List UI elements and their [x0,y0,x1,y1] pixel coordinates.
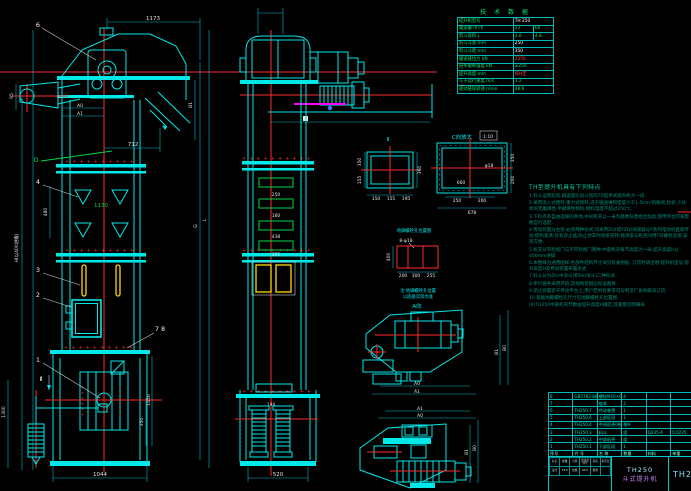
table-cell: 组 [622,428,646,435]
dim-m355: 355 [272,252,281,258]
table-cell [671,421,691,428]
revision-grid: 标记处数分区更改文件号签名年月日设计03.6校核03.6批准 [549,457,611,476]
table-cell: 3.0 [513,33,533,41]
dim-va-a1: A1 [414,389,420,395]
table-cell: 48.6 [513,86,553,94]
dim-v2-b1: 150 [372,196,381,202]
table-cell [671,414,691,421]
table-cell: 上部区段 [597,414,621,421]
dim-v2-left1: 350 [357,158,363,167]
table-cell: 23 [513,25,533,33]
bolt-marks: ++++++++++ [242,156,314,162]
dim-vb-a0: A0 [417,413,423,419]
table-cell: 1 [549,443,573,450]
table-cell [646,393,670,400]
table-cell: 2 [622,400,646,407]
table-row: 2TH250.2中部机壳组备件 [549,436,691,443]
dim-head-width: 1173 [146,16,160,22]
feature-notes: TH型提升机具有下列特点 1.料斗运距较宽,输送量比同斗宽的TD型带式提升机大一… [529,182,690,310]
table-cell: 4.8 [533,33,553,41]
dim-boot-h1: 1450 [146,394,152,406]
table-cell: 斗子运行速度 m/s [458,78,514,86]
table-cell [646,407,670,414]
table-cell [671,407,691,414]
title-block-product: TH250 斗式提升机 [612,457,669,491]
table-cell [671,443,691,450]
bolt-marks: ++++++ [80,384,85,416]
table-row: 6TH250.7传动装置1 [549,407,691,414]
table-cell: 6 [549,407,573,414]
table-cell [646,400,670,407]
anchor-note-2: 以底座实际为准 [403,293,434,300]
tech-table-title: 技 术 数 据 [457,7,554,16]
product-model: TH250 [627,466,653,474]
table-cell: TH250.1 [573,443,597,450]
table-cell: 年月日 [600,458,610,467]
table-row: 1TH250.1下部区段1备件 [549,443,691,450]
table-cell: TH250.2 [573,436,597,443]
dim-v2-b3: 195 [402,196,411,202]
table-cell: 料斗斗距 mm [458,48,514,56]
table-cell: 中部机壳 [597,436,621,443]
table-cell: 料斗 [597,428,621,435]
front-view: ++++++++++ ++++++++++ ++++++++++ 1130 ++… [12,28,190,468]
table-cell: 03.6 [580,467,590,476]
dim-v2-left2: 155 [357,176,363,185]
table-cell: 驱动链轮转速 r/min [458,86,514,94]
table-cell: 3 [549,428,573,435]
table-row: 7链条2L=按H [549,400,691,407]
dim-anchor-b3: 255 [427,273,436,279]
dim-a0: A0 [77,103,83,109]
table-row: 料斗斗距 mm350 [458,48,554,56]
table-row: 提升高度 mm按H定 [458,71,554,79]
table-cell: TH 250 [513,18,553,26]
callout-3: 3 [36,266,40,274]
tech-table-grid: 提升机型号TH 250输送量 m³/h2360料斗容积 L3.04.8料斗斗宽 … [457,17,554,94]
dim-va-b1: B1 [494,349,500,355]
table-cell: 1.2 [513,78,553,86]
table-cell [646,436,670,443]
table-cell: 5 [549,414,573,421]
anchor-bolt-layout: 地脚螺栓孔位置图 8-φ18 400 200 300 255 注:地脚螺栓孔位置… [386,227,438,310]
bolt-marks: ++++++ [117,384,122,416]
table-cell: 输送量 m³/h [458,25,514,33]
table-cell [646,414,670,421]
bolt-marks: ++++++++++ [65,248,137,254]
note-line: 9.逆止装置装于传动平台上,用户若另有要求可与制造厂协商解决订货. [529,289,690,295]
table-cell: 提升机型号 [458,18,514,26]
table-cell: 处数 [560,458,570,467]
table-cell: 按H定 [513,71,553,79]
table-cell: 提升高度 mm [458,71,514,79]
note-line: 5.机壳分带检视门与不带检视门两种,中部机壳每节高度为一米,提升高度H以400m… [529,248,690,260]
table-cell: 更改文件号 [580,458,590,467]
table-row: 提升机型号TH 250 [458,18,554,26]
dim-m250: 250 [272,192,281,198]
section-c-scale: 1:10 [483,134,493,140]
table-cell [600,467,610,476]
table-row: 料斗容积 L3.04.8 [458,33,554,41]
table-cell: 4 [622,393,646,400]
dim-c-r1: 350 [510,154,516,163]
callout-2: 2 [36,291,40,299]
table-cell: 链条 [597,400,621,407]
dim-boot-h2: 350 [139,418,145,427]
note-line: 1.料斗运距较宽,输送量比同斗宽的TD型带式提升机大一倍. [529,194,690,200]
table-cell: 0.0235 [671,428,691,435]
dim-anchor-left: 400 [386,253,392,262]
table-cell: 250 [513,40,553,48]
callout-4: 4 [36,178,40,186]
table-row: 输送链拉力 kN2350 [458,55,554,63]
table-row: 4TH250.4中间机壳(带门)按H [549,421,691,428]
dim-vb-b1: B1 [464,449,470,455]
note-line: 10.基础地脚螺栓孔尺寸见地脚螺栓孔位置图. [529,296,690,302]
dim-vb-a1: A1 [417,406,423,412]
note-line: 3.下料点有自由选择的余地,中间机壳以一米为基数任意组合加高,使用单位可按需要自… [529,215,690,227]
dim-anchor-b2: 300 [412,273,421,279]
table-row: 5TH250.6上部区段1 [549,414,691,421]
dim-c660: 660 [457,180,466,186]
table-cell: 料斗斗宽 mm [458,40,514,48]
table-cell: ≥250 [513,63,553,71]
dim-vb-b0: B0 [472,445,478,451]
table-row: 设计03.6校核03.6批准 [550,467,611,476]
note-line: 8.牵引链条采用环链,其规格见相应标准图样. [529,282,690,288]
dim-bucket-pitch: 1130 [94,203,108,209]
dim-c-b2: 200 [478,198,487,204]
table-row: 3TH250.3料斗组Q235-A0.0235200 [549,428,691,435]
dim-a1: A1 [77,111,83,117]
table-cell: 组 [622,436,646,443]
table-cell [671,436,691,443]
table-cell: 2 [549,436,573,443]
table-cell: TH250.4 [573,421,597,428]
table-cell: 签名 [590,458,600,467]
table-cell: 60 [533,25,553,33]
table-cell: TH250.7 [573,407,597,414]
anchor-title: 地脚螺栓孔位置图 [397,227,431,234]
title-block-revisions: 标记处数分区更改文件号签名年月日设计03.6校核03.6批准 [549,457,612,491]
anchor-note-1: 注:地脚螺栓孔位置 [400,287,437,294]
dim-c-hole: φ18 [485,163,494,169]
note-line: (9)TH250中部机壳节数由提升高度H确定,其重量见明细表. [529,303,690,309]
table-cell: 1 [622,443,646,450]
table-cell: 输送链拉力 kN [458,55,514,63]
table-cell: TH250.6 [573,414,597,421]
table-cell: 中间机壳(带门) [597,421,621,428]
table-cell: 料斗容积 L [458,33,514,41]
table-cell: 03.6 [560,467,570,476]
dim-va-a0: A0 [414,381,420,387]
callout-7-8: 7 8 [155,325,165,333]
table-row: 斗子运行速度 m/s1.2 [458,78,554,86]
callout-d: D [33,156,38,164]
table-cell: 7 [549,400,573,407]
table-cell: 批准 [590,467,600,476]
table-cell: 2350 [513,55,553,63]
table-row: 输送量 m³/h2360 [458,25,554,33]
table-cell: 螺栓M16×60 [597,393,621,400]
dim-height-note: H(以400进级) [13,233,20,262]
dim-b1-head: B1 [188,102,194,108]
anchor-bolt-label: 8-φ18 [399,238,412,244]
bom-grid: 8GB5782-86螺栓M16×604按H定7链条2L=按H6TH250.7传动… [548,392,691,458]
drive-view-top: B1 B0 A0 A1 [363,310,508,395]
dim-g: G [193,224,199,228]
table-cell: 链条破断强度 kN [458,63,514,71]
table-cell: 传动装置 [597,407,621,414]
section-ii-label: Ⅱ [387,137,390,143]
dim-anchor-b1: 200 [399,273,408,279]
dim-m438: 438 [272,234,281,240]
table-cell: 4 [549,421,573,428]
table-row: 8GB5782-86螺栓M16×604按H定 [549,393,691,400]
bom-table: 8GB5782-86螺栓M16×604按H定7链条2L=按H6TH250.7传动… [548,392,691,458]
tech-data-table: 技 术 数 据 提升机型号TH 250输送量 m³/h2360料斗容积 L3.0… [457,7,554,94]
dim-c-r2: 200 [510,176,516,185]
table-cell: Q235-A [646,428,670,435]
section-c-view: C向放大 1:10 660 φ18 250 200 678 350 200 [431,131,516,216]
dim-v2-b2: 155 [387,196,396,202]
dim-bucket-zone: 480 [43,208,49,217]
dim-chute: 712 [128,142,139,148]
table-cell [646,443,670,450]
note-line: 4.传动装置分左装,右装两种形式,均采用ZQ(或YZQ)减速器与Y系列电动机直联… [529,228,690,247]
table-cell: 1 [622,407,646,414]
title-block: 标记处数分区更改文件号签名年月日设计03.6校核03.6批准 TH250 斗式提… [548,456,691,491]
table-row: 驱动链轮转速 r/min48.6 [458,86,554,94]
dim-boot-left: 1300 [1,406,7,418]
note-line: 2.采用流入式喂料,重力式卸料,适于输送堆积密度小于1.5t/m³的粉状,粒状,… [529,201,690,213]
product-name: 斗式提升机 [622,474,657,483]
table-cell: 1 [622,414,646,421]
table-cell: TH250.3 [573,428,597,435]
title-block-number: TH250 [669,457,691,491]
dim-l: L [202,218,208,221]
feature-notes-list: 1.料斗运距较宽,输送量比同斗宽的TD型带式提升机大一倍.2.采用流入式喂料,重… [529,194,690,309]
table-cell [646,421,670,428]
note-line: 6.本图样为通用图样,各部件结构尺寸详见有关图纸. 订货时请注明:提升机型号,提… [529,261,690,273]
drawing-number: TH250 [673,470,691,479]
table-cell: 8 [549,393,573,400]
section-ii-view: Ⅱ 150 155 195 360 350 155 [357,137,423,202]
table-cell: 下部区段 [597,443,621,450]
bolt-marks: ++++++++++ [64,345,136,351]
table-cell: 设计 [550,467,560,476]
section-ii-marker: Ⅱ [39,375,42,383]
table-row: 标记处数分区更改文件号签名年月日 [550,458,611,467]
dim-boot-width: 1044 [93,472,107,478]
table-cell: 校核 [570,467,580,476]
table-row: 料斗斗宽 mm250 [458,40,554,48]
table-cell: 350 [513,48,553,56]
note-line: 7.料斗分为Zh(中深斗)和Sh(深斗)二种形式. [529,274,690,280]
feature-notes-title: TH型提升机具有下列特点 [529,182,690,191]
table-cell [573,400,597,407]
bolt-marks: ++++++++++ [65,159,137,165]
dim-bracket: 95 [9,93,15,99]
bolt-marks: ++++++++++ [242,389,314,395]
cad-canvas: ++++++++++ ++++++++++ ++++++++++ 1130 ++… [0,0,691,491]
table-cell: 分区 [570,458,580,467]
table-cell [671,393,691,400]
dim-m160: 160 [272,213,281,219]
table-cell: 标记 [550,458,560,467]
dim-v2-right: 360 [417,166,423,175]
dim-c678: 678 [468,210,477,216]
dim-m144: 144 [267,402,276,408]
view-a-label: A向 [412,302,421,310]
dim-c-b1: 250 [453,198,462,204]
callout-6: 6 [36,21,40,29]
dim-va-b0: B0 [502,345,508,351]
callout-1: 1 [36,356,40,364]
table-cell: GB5782-86 [573,393,597,400]
table-cell [671,400,691,407]
dim-m520: 520 [273,472,284,478]
drive-view-bottom: A1 A0 B1 B0 [360,406,478,488]
table-cell: 按H [622,421,646,428]
table-row: 链条破断强度 kN≥250 [458,63,554,71]
